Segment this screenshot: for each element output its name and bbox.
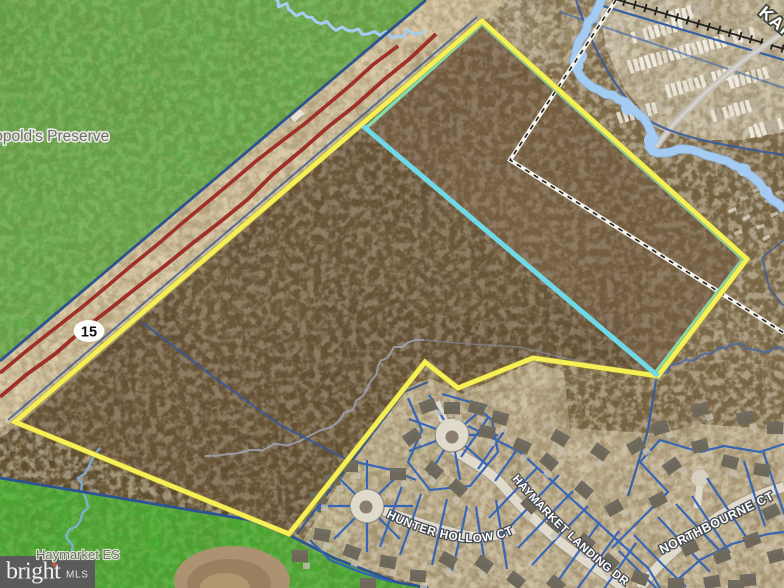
svg-text:15: 15: [81, 325, 97, 341]
svg-text:Haymarket ES: Haymarket ES: [36, 547, 120, 562]
svg-text:MLS: MLS: [66, 570, 89, 581]
svg-text:Leopold's Preserve: Leopold's Preserve: [0, 128, 109, 145]
